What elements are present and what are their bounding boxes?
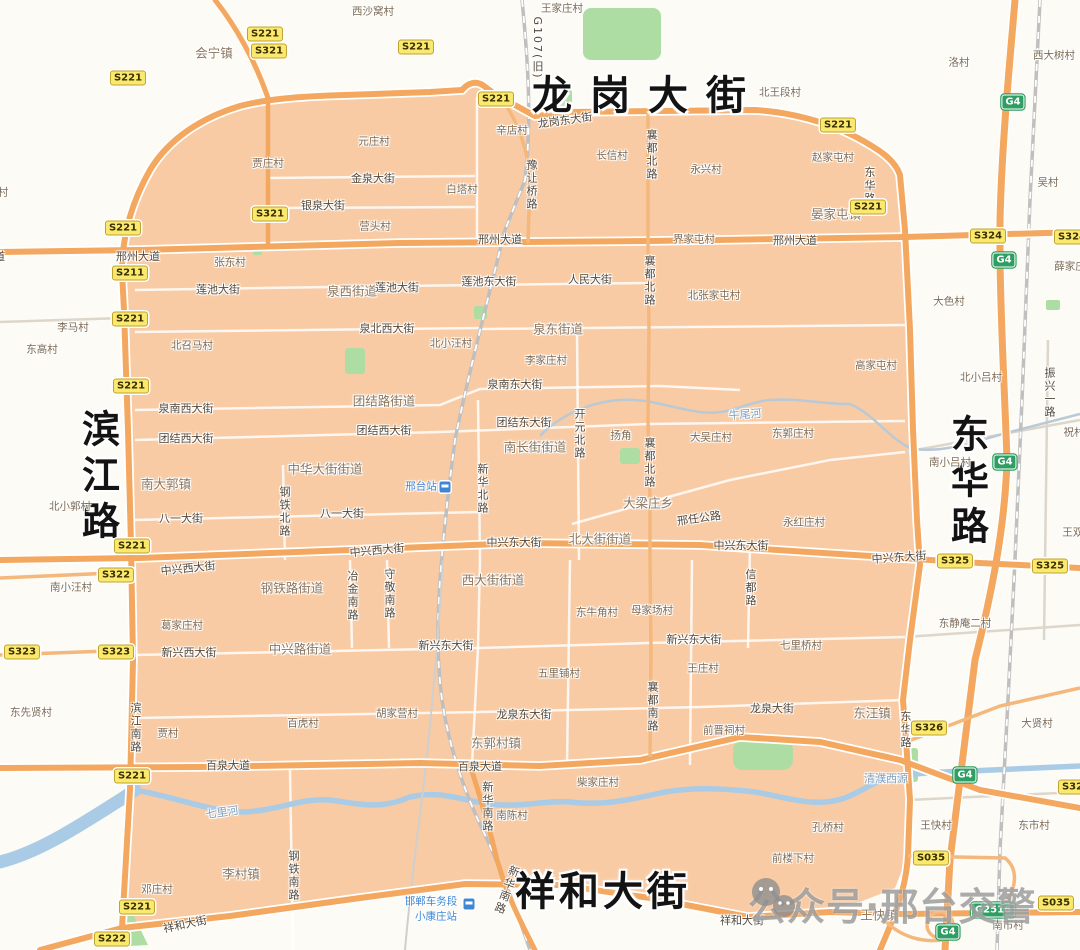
map-canvas: 龙岗大街祥和大街滨江路东华路会宁镇晏家屯镇泉西街道泉东街道团结路街道中华大街街道… — [0, 0, 1080, 950]
map-base-graphics — [0, 0, 1080, 950]
watermark: 公众号·邢台交警 — [748, 876, 1036, 931]
wechat-bubbles-icon — [748, 876, 800, 922]
